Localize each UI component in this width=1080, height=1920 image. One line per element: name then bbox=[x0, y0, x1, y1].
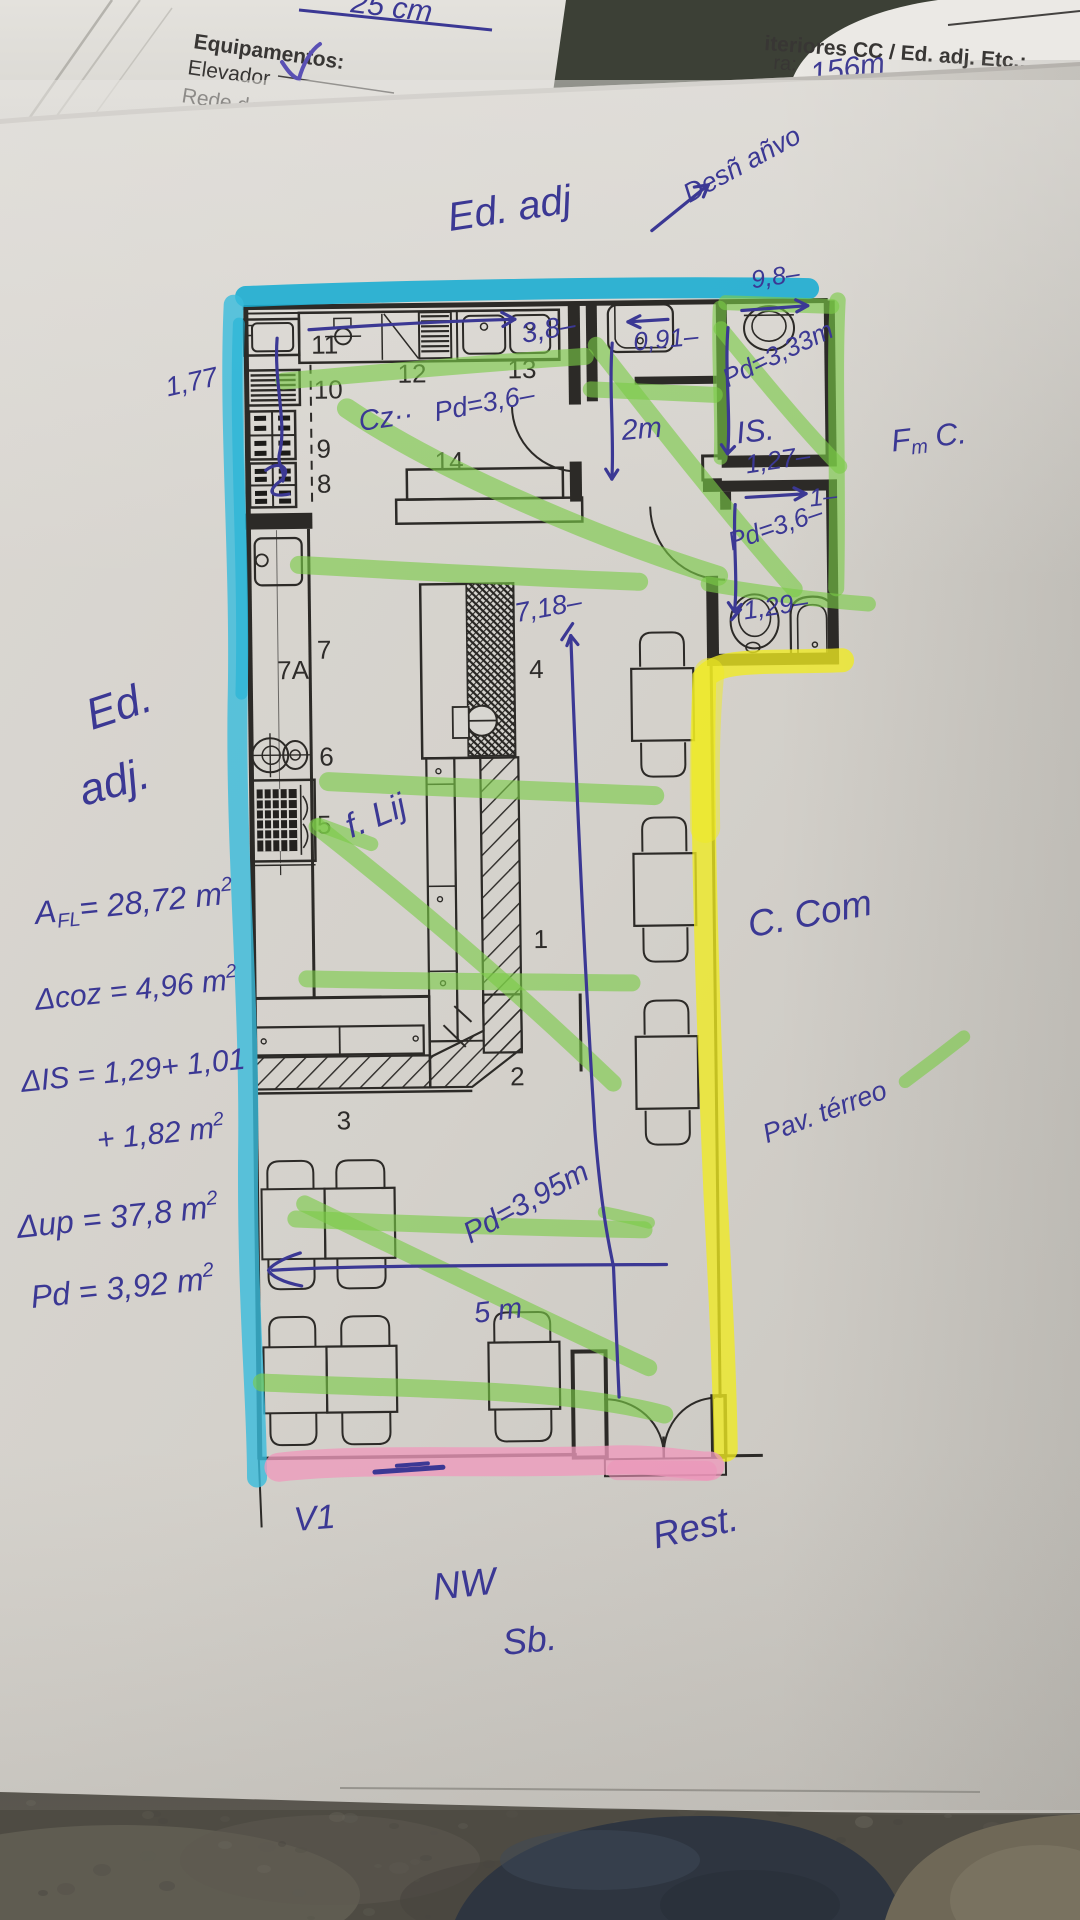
svg-text:9: 9 bbox=[316, 434, 331, 464]
svg-text:1: 1 bbox=[533, 924, 548, 954]
svg-text:6: 6 bbox=[319, 742, 334, 772]
svg-text:IS.: IS. bbox=[734, 411, 776, 450]
svg-text:7: 7 bbox=[317, 635, 332, 665]
svg-text:11: 11 bbox=[311, 329, 338, 359]
svg-text:Sb.: Sb. bbox=[501, 1617, 559, 1663]
svg-text:NW: NW bbox=[431, 1560, 501, 1609]
svg-text:V1: V1 bbox=[292, 1498, 337, 1539]
svg-text:7A: 7A bbox=[277, 655, 310, 685]
svg-text:3: 3 bbox=[336, 1105, 351, 1135]
svg-text:8: 8 bbox=[317, 469, 332, 499]
svg-text:2: 2 bbox=[510, 1061, 525, 1091]
svg-text:2m: 2m bbox=[619, 412, 663, 447]
svg-text:5 m: 5 m bbox=[472, 1292, 524, 1329]
svg-text:4: 4 bbox=[529, 654, 544, 684]
